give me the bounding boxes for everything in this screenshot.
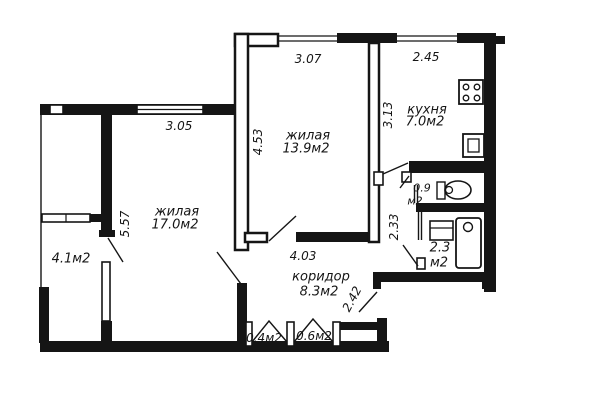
bathroom-area-label: 2.3 [430, 242, 451, 255]
wall-room1-west-foot [99, 230, 115, 237]
dim-corridor-width: 4.03 [290, 250, 317, 262]
dim-kitchen-top: 2.45 [413, 51, 440, 63]
dim-san-block: 2.33 [388, 214, 400, 241]
kitchen-area-label: 7.0м2 [406, 116, 445, 129]
dim-kitchen-left: 3.13 [382, 102, 394, 129]
kitchen-door-leaf [374, 172, 383, 185]
toilet-unit-label: м2 [407, 196, 422, 207]
closet-jamb-right [333, 322, 340, 346]
dim-room2-left: 4.53 [252, 129, 264, 156]
wall-entrance-east [377, 318, 387, 344]
bath-door-jamb [417, 258, 425, 269]
bathroom-unit-label: м2 [430, 257, 448, 270]
door-swing-room1 [217, 252, 241, 284]
floor-plan: жилая 17.0м2 жилая 13.9м2 кухня 7.0м2 ко… [0, 0, 600, 400]
wall-bath-bottom-cap-right [482, 282, 490, 289]
wall-bath-bottom [373, 272, 490, 282]
toilet-tank [437, 182, 445, 199]
stove-burner [463, 84, 469, 90]
corridor-name-label: коридор [292, 271, 350, 284]
window-strip-gap [50, 105, 63, 114]
dim-room1-left: 5.57 [119, 211, 131, 238]
washbasin-icon [430, 221, 453, 240]
kitchen-sink-bowl [468, 139, 479, 152]
wall-room1-west [101, 115, 112, 237]
wall-room2-bottom-partition [245, 233, 267, 242]
wall-room2-bottom [296, 232, 378, 242]
wall-room2-east [369, 43, 379, 242]
corridor-area-label: 8.3м2 [300, 286, 339, 299]
wall-tick-top-right [496, 36, 505, 44]
room1-area-label: 17.0м2 [151, 219, 198, 232]
toilet-door-jamb [402, 172, 411, 182]
wall-left-bottom-stub [39, 287, 49, 343]
closet-small-area-label: 0.4м2 [246, 332, 282, 344]
window-balcony-block [102, 262, 110, 321]
closet-large-area-label: 0.6м2 [296, 330, 332, 342]
stove-burner [463, 95, 469, 101]
toilet-area-label: 0.9 [413, 183, 431, 194]
loggia-area-label: 4.1м2 [52, 253, 91, 266]
toilet-flush [446, 187, 453, 194]
stove-burner [474, 95, 480, 101]
door-swing-room2 [269, 216, 296, 241]
wall-top-room2 [337, 33, 397, 43]
wall-bath-bottom-cap-left [373, 282, 381, 289]
dim-room1-top: 3.05 [166, 120, 193, 132]
door-swing-bath [403, 245, 418, 266]
closet-jamb-middle [287, 322, 294, 346]
dim-room2-top: 3.07 [295, 53, 322, 65]
door-swing-balcony [108, 238, 123, 262]
room2-area-label: 13.9м2 [282, 143, 329, 156]
wall-loggia-window-end [90, 214, 102, 222]
wall-toilet-bottom [416, 203, 490, 212]
wall-kitchen-bottom [409, 161, 490, 173]
bathtub-drain [464, 223, 473, 232]
stove-burner [474, 84, 480, 90]
wall-room2-west [235, 34, 248, 250]
